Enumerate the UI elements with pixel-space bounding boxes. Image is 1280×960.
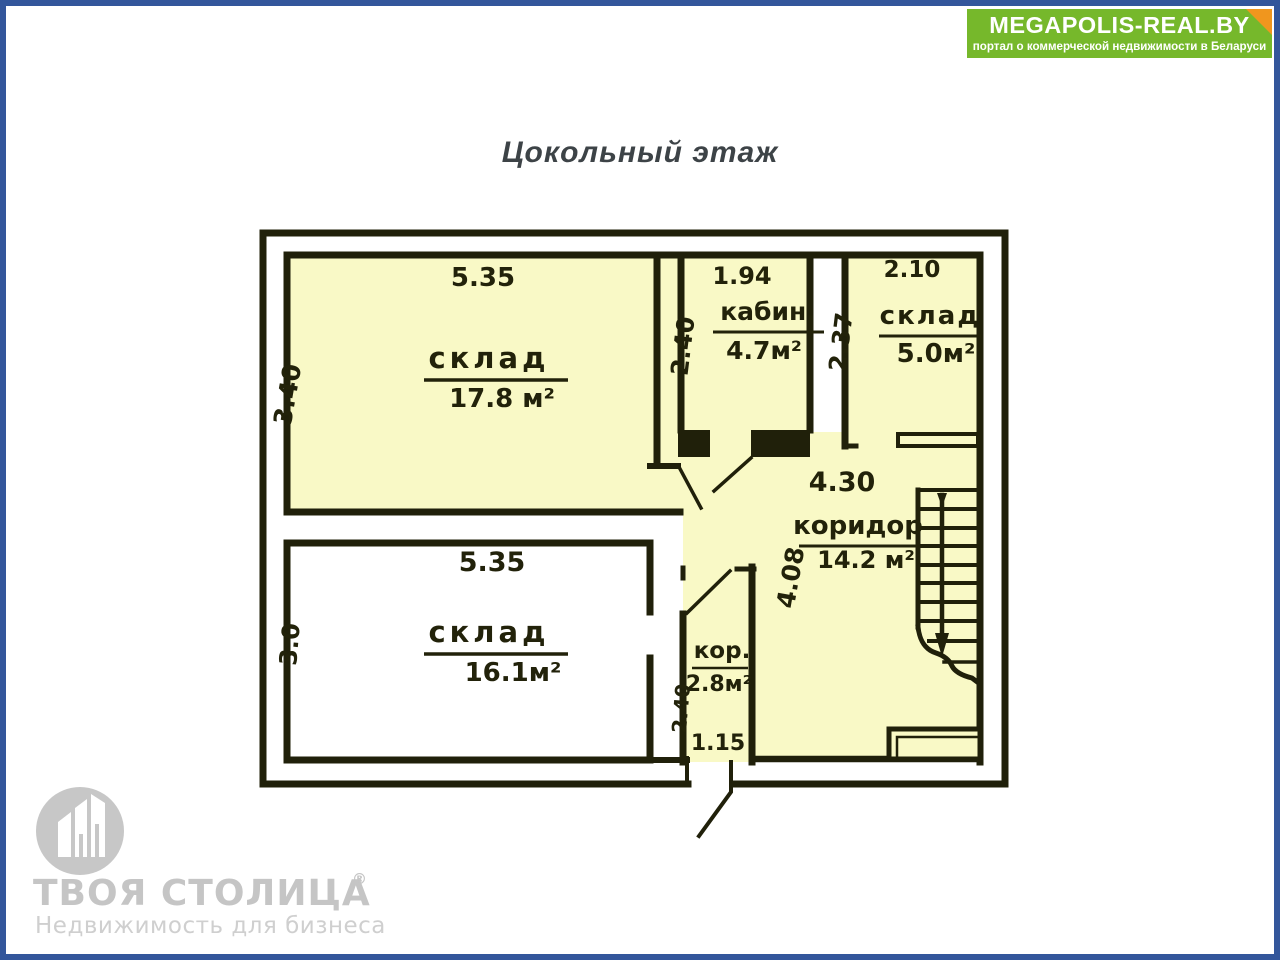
office-width-dim: 1.94 <box>712 262 771 290</box>
floor-plan-drawing: 5.35 3.40 склад 17.8 м² 1.94 2.40 кабин.… <box>0 0 1280 960</box>
storage2-area: 5.0м² <box>897 339 976 369</box>
storage3-width-dim: 5.35 <box>459 547 526 578</box>
storage3-area: 16.1м² <box>465 658 562 688</box>
office-jamb-left <box>678 430 710 457</box>
bottom-right-niche <box>889 729 980 759</box>
kor-area: 2.8м² <box>686 672 753 697</box>
corridor-area: 14.2 м² <box>817 546 915 574</box>
kor-height-dim: 2.40 <box>667 683 695 734</box>
kor-name: кор. <box>694 638 751 664</box>
corridor-width-dim: 4.30 <box>809 467 876 498</box>
tvoya-stolitsa-logo: ТВОЯ СТОЛИЦА ® Недвижимость для бизнеса <box>33 787 386 939</box>
logo-tagline: Недвижимость для бизнеса <box>35 913 386 939</box>
storage2-name: склад <box>880 301 981 331</box>
storage1-name: склад <box>428 341 549 375</box>
storage3-height-dim: 3.0 <box>274 622 306 667</box>
kor-width-dim: 1.15 <box>691 731 745 756</box>
storage1-area: 17.8 м² <box>449 384 555 414</box>
page: MEGAPOLIS-REAL.BY портал о коммерческой … <box>0 0 1280 960</box>
corridor-name: коридор <box>793 511 923 541</box>
storage2-width-dim: 2.10 <box>884 257 941 283</box>
office-name: кабин. <box>720 297 816 326</box>
storage3-name: склад <box>428 615 549 649</box>
entrance-door-swing <box>699 762 731 836</box>
office-area: 4.7м² <box>726 336 802 365</box>
storage2-partition-bar <box>898 434 978 446</box>
storage1-width-dim: 5.35 <box>451 263 515 293</box>
logo-name: ТВОЯ СТОЛИЦА <box>33 873 371 914</box>
logo-reg-mark: ® <box>352 870 367 888</box>
office-jamb-right <box>751 430 810 457</box>
